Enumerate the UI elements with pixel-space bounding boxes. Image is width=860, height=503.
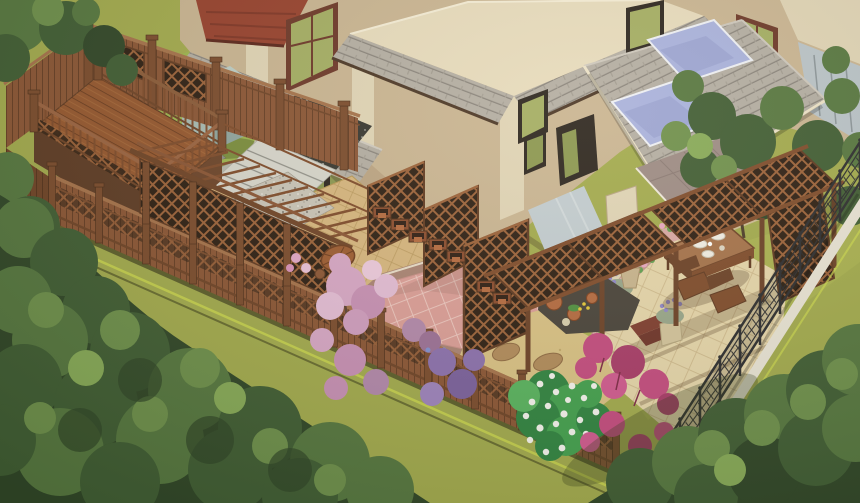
- garden-rendering: Villa courtyard garden — aerial 3D lands…: [0, 0, 860, 503]
- light-overlay: [0, 0, 860, 503]
